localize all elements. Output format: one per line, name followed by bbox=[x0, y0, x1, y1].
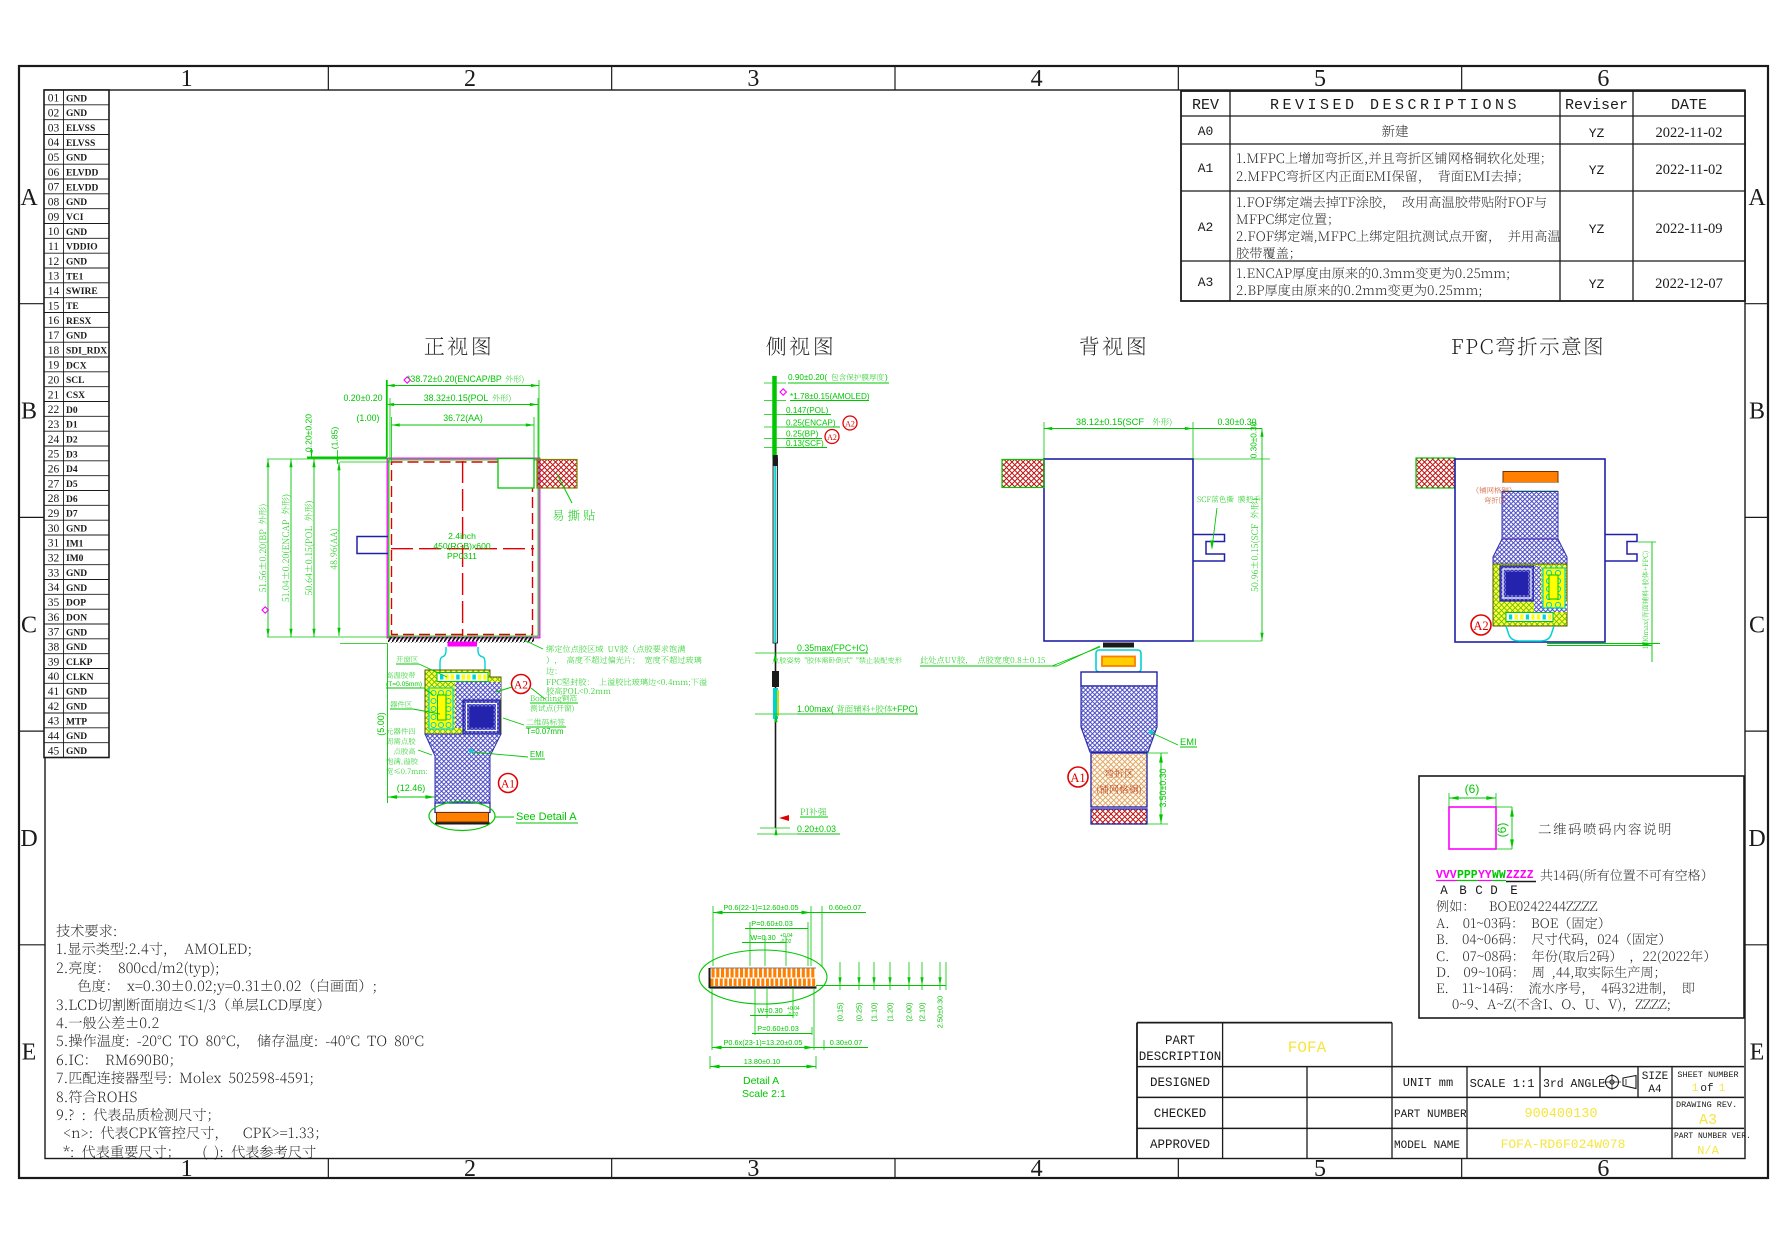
svg-text:SCALE 1:1: SCALE 1:1 bbox=[1470, 1077, 1535, 1091]
svg-text:GND: GND bbox=[66, 332, 87, 342]
svg-text:08: 08 bbox=[48, 196, 60, 208]
svg-text:34: 34 bbox=[48, 582, 60, 594]
svg-text:12: 12 bbox=[48, 256, 60, 268]
svg-text:GND: GND bbox=[66, 198, 87, 208]
svg-text:(2.00): (2.00) bbox=[905, 1002, 914, 1021]
svg-text:0.90±0.20(: 0.90±0.20( bbox=[788, 373, 827, 382]
svg-text:16: 16 bbox=[48, 315, 60, 327]
svg-text:APPROVED: APPROVED bbox=[1150, 1138, 1210, 1152]
svg-text:A2: A2 bbox=[1198, 220, 1214, 235]
svg-text:D: D bbox=[1490, 884, 1498, 898]
svg-text:CHECKED: CHECKED bbox=[1154, 1107, 1207, 1121]
svg-text:A1: A1 bbox=[1198, 161, 1214, 176]
svg-text:*1.78±0.15(AMOLED): *1.78±0.15(AMOLED) bbox=[790, 392, 870, 401]
svg-text:MODEL NAME: MODEL NAME bbox=[1394, 1140, 1460, 1152]
svg-text:B: B bbox=[1459, 884, 1467, 898]
svg-text:GND: GND bbox=[66, 643, 87, 653]
svg-text:0.35max(FPC+IC): 0.35max(FPC+IC) bbox=[797, 643, 868, 653]
svg-text:3.50±0.30: 3.50±0.30 bbox=[1158, 768, 1168, 807]
svg-text:0.20±0.20: 0.20±0.20 bbox=[343, 393, 382, 403]
svg-text:28: 28 bbox=[48, 493, 60, 505]
svg-text:D7: D7 bbox=[66, 510, 78, 520]
svg-text:1: 1 bbox=[1719, 1083, 1726, 1095]
svg-text:5: 5 bbox=[1314, 66, 1326, 92]
svg-text:5: 5 bbox=[1314, 1156, 1326, 1182]
svg-text:A3: A3 bbox=[1699, 1112, 1717, 1129]
svg-text:ELVSS: ELVSS bbox=[66, 139, 95, 149]
svg-text:PART NUMBER: PART NUMBER bbox=[1394, 1109, 1467, 1121]
svg-text:A2: A2 bbox=[845, 420, 855, 429]
svg-text:D6: D6 bbox=[66, 495, 78, 505]
svg-text:A1: A1 bbox=[501, 779, 515, 791]
svg-text:33: 33 bbox=[48, 567, 60, 579]
svg-text:0.13(SCF): 0.13(SCF) bbox=[786, 439, 824, 448]
svg-text:4: 4 bbox=[1031, 1156, 1043, 1182]
svg-text:GND: GND bbox=[66, 109, 87, 119]
svg-text:EMI: EMI bbox=[1180, 737, 1197, 747]
svg-text:GND: GND bbox=[66, 747, 87, 757]
svg-text:6: 6 bbox=[1597, 1156, 1609, 1182]
svg-text:GND: GND bbox=[66, 584, 87, 594]
svg-text:GND: GND bbox=[66, 258, 87, 268]
svg-text:E: E bbox=[1750, 1040, 1765, 1066]
svg-text:0.20±0.20: 0.20±0.20 bbox=[304, 414, 314, 452]
svg-text:DRAWING REV.: DRAWING REV. bbox=[1676, 1100, 1737, 1110]
svg-text:of: of bbox=[1700, 1083, 1713, 1095]
svg-text:GND: GND bbox=[66, 569, 87, 579]
svg-text:09: 09 bbox=[48, 211, 60, 223]
svg-text:A3: A3 bbox=[1198, 275, 1214, 290]
svg-text:3rd ANGLE: 3rd ANGLE bbox=[1543, 1078, 1605, 1091]
svg-text:44: 44 bbox=[48, 730, 60, 742]
svg-text:REV: REV bbox=[1192, 97, 1219, 114]
svg-text:A: A bbox=[1440, 884, 1448, 898]
svg-text:31: 31 bbox=[48, 538, 60, 550]
svg-text:SCL: SCL bbox=[66, 376, 84, 386]
svg-text:(6): (6) bbox=[1465, 782, 1480, 796]
svg-text:CSX: CSX bbox=[66, 391, 85, 401]
svg-text:C: C bbox=[1475, 884, 1483, 898]
svg-text:2022-11-02: 2022-11-02 bbox=[1655, 162, 1722, 178]
svg-text:DOP: DOP bbox=[66, 599, 86, 609]
svg-text:30: 30 bbox=[48, 523, 60, 535]
svg-text:RESX: RESX bbox=[66, 317, 91, 327]
svg-text:19: 19 bbox=[48, 360, 60, 372]
svg-text:2.4inch: 2.4inch bbox=[448, 531, 476, 541]
svg-text:35: 35 bbox=[48, 597, 60, 609]
svg-text:17: 17 bbox=[48, 330, 60, 342]
svg-text:2.50±0.30: 2.50±0.30 bbox=[936, 996, 945, 1028]
svg-text:EMI: EMI bbox=[530, 750, 544, 759]
svg-text:B: B bbox=[21, 399, 37, 425]
svg-text:21: 21 bbox=[48, 389, 60, 401]
svg-text:YZ: YZ bbox=[1589, 277, 1605, 292]
svg-text:Scale 2:1: Scale 2:1 bbox=[742, 1088, 786, 1100]
svg-text:YZ: YZ bbox=[1589, 126, 1605, 141]
svg-text:GND: GND bbox=[66, 94, 87, 104]
svg-text:D: D bbox=[1748, 826, 1765, 852]
svg-text:DATE: DATE bbox=[1671, 97, 1707, 114]
svg-text:W=0.30: W=0.30 bbox=[750, 933, 775, 942]
svg-text:0.25(BP): 0.25(BP) bbox=[786, 430, 819, 439]
svg-text:(0.15): (0.15) bbox=[836, 1002, 845, 1021]
svg-text:37: 37 bbox=[48, 627, 60, 639]
svg-text:Reviser: Reviser bbox=[1565, 97, 1628, 114]
svg-text:W=0.30: W=0.30 bbox=[757, 1006, 782, 1015]
svg-text:2022-11-02: 2022-11-02 bbox=[1655, 125, 1722, 141]
svg-text:(5.00): (5.00) bbox=[376, 712, 386, 736]
svg-text:CLKP: CLKP bbox=[66, 658, 93, 668]
svg-text:CLKN: CLKN bbox=[66, 673, 94, 683]
svg-text:FOFA-RD6F024W078: FOFA-RD6F024W078 bbox=[1501, 1137, 1626, 1152]
svg-text:P0.6x(23-1)=13.20±0.05: P0.6x(23-1)=13.20±0.05 bbox=[724, 1038, 803, 1047]
svg-text:D1: D1 bbox=[66, 421, 78, 431]
svg-text:2: 2 bbox=[464, 66, 476, 92]
svg-text:D3: D3 bbox=[66, 450, 78, 460]
svg-text:SIZE: SIZE bbox=[1642, 1071, 1669, 1083]
svg-text:D2: D2 bbox=[66, 436, 78, 446]
svg-text:2: 2 bbox=[464, 1156, 476, 1182]
svg-text:6: 6 bbox=[1597, 66, 1609, 92]
svg-text:A: A bbox=[1748, 185, 1766, 211]
svg-text:13: 13 bbox=[48, 271, 60, 283]
svg-text:0.147(POL): 0.147(POL) bbox=[786, 406, 829, 415]
svg-text:(1.85): (1.85) bbox=[330, 427, 340, 450]
svg-text:P=0.60±0.03: P=0.60±0.03 bbox=[751, 919, 793, 928]
svg-text:C: C bbox=[1749, 612, 1765, 638]
svg-text:38: 38 bbox=[48, 641, 60, 653]
svg-text:P0.6(22-1)=12.60±0.05: P0.6(22-1)=12.60±0.05 bbox=[723, 903, 798, 912]
svg-text:ZZZZ: ZZZZ bbox=[1506, 869, 1534, 882]
svg-text:GND: GND bbox=[66, 732, 87, 742]
svg-text:29: 29 bbox=[48, 508, 60, 520]
svg-text:A4: A4 bbox=[1648, 1084, 1662, 1096]
svg-text:SWIRE: SWIRE bbox=[66, 287, 98, 297]
svg-text:14: 14 bbox=[48, 285, 60, 297]
svg-text:TE1: TE1 bbox=[66, 272, 84, 282]
svg-text:IM1: IM1 bbox=[66, 539, 84, 549]
svg-text:36.72(AA): 36.72(AA) bbox=[443, 413, 483, 423]
svg-text:PP0311: PP0311 bbox=[447, 551, 477, 561]
svg-text:P=0.60±0.03: P=0.60±0.03 bbox=[757, 1024, 799, 1033]
svg-text:01: 01 bbox=[48, 93, 60, 105]
svg-text:39: 39 bbox=[48, 656, 60, 668]
svg-text:1: 1 bbox=[181, 1156, 193, 1182]
svg-text:(2.10): (2.10) bbox=[918, 1002, 927, 1021]
svg-text:GND: GND bbox=[66, 154, 87, 164]
svg-text:45: 45 bbox=[48, 745, 60, 757]
svg-text:DESIGNED: DESIGNED bbox=[1150, 1076, 1210, 1090]
svg-text:11: 11 bbox=[48, 241, 59, 253]
svg-text:(1.00): (1.00) bbox=[357, 413, 380, 423]
svg-text:A0: A0 bbox=[1198, 124, 1214, 139]
svg-text:E: E bbox=[1510, 884, 1518, 898]
svg-text:SHEET NUMBER: SHEET NUMBER bbox=[1677, 1070, 1738, 1080]
svg-text:20: 20 bbox=[48, 374, 60, 386]
svg-text:GND: GND bbox=[66, 628, 87, 638]
svg-text:REVISED DESCRIPTIONS: REVISED DESCRIPTIONS bbox=[1270, 97, 1520, 114]
svg-text:A2: A2 bbox=[1473, 619, 1488, 633]
svg-text:(6): (6) bbox=[1495, 823, 1509, 838]
svg-text:DON: DON bbox=[66, 614, 87, 624]
svg-text:(T=0.05mm): (T=0.05mm) bbox=[386, 681, 422, 688]
svg-text:GND: GND bbox=[66, 703, 87, 713]
svg-text:10: 10 bbox=[48, 226, 60, 238]
svg-text:18: 18 bbox=[48, 345, 60, 357]
svg-text:D4: D4 bbox=[66, 465, 78, 475]
svg-text:0.25(ENCAP): 0.25(ENCAP) bbox=[786, 419, 836, 428]
svg-text:GND: GND bbox=[66, 228, 87, 238]
svg-text:A1: A1 bbox=[1070, 771, 1085, 785]
svg-text:3: 3 bbox=[747, 1156, 759, 1182]
svg-text:SDI_RDX: SDI_RDX bbox=[66, 347, 107, 357]
svg-text:0.20±0.03: 0.20±0.03 bbox=[797, 824, 836, 834]
svg-text:26: 26 bbox=[48, 463, 60, 475]
svg-text:DCX: DCX bbox=[66, 361, 87, 371]
svg-text:VCI: VCI bbox=[66, 213, 84, 223]
svg-text:YZ: YZ bbox=[1589, 163, 1605, 178]
svg-text:(1.20): (1.20) bbox=[886, 1002, 895, 1021]
svg-text:*38.72±0.20(ENCAP/BP: *38.72±0.20(ENCAP/BP bbox=[407, 374, 502, 384]
svg-text:B: B bbox=[1749, 399, 1765, 425]
svg-text:0.30±0.07: 0.30±0.07 bbox=[830, 1038, 862, 1047]
svg-text:0.60±0.07: 0.60±0.07 bbox=[829, 903, 861, 912]
svg-text:GND: GND bbox=[66, 525, 87, 535]
svg-text:3: 3 bbox=[747, 66, 759, 92]
svg-text:MTP: MTP bbox=[66, 717, 87, 727]
svg-text:TE: TE bbox=[66, 302, 79, 312]
svg-text:+FPC): +FPC) bbox=[892, 704, 918, 714]
svg-text:PART NUMBER VER.: PART NUMBER VER. bbox=[1674, 1132, 1751, 1141]
svg-text:05: 05 bbox=[48, 152, 60, 164]
svg-text:FOFA: FOFA bbox=[1288, 1039, 1327, 1057]
svg-text:T=0.07mm: T=0.07mm bbox=[526, 727, 563, 736]
svg-text:E: E bbox=[22, 1040, 37, 1066]
svg-text:2022-11-09: 2022-11-09 bbox=[1655, 221, 1722, 237]
svg-text:): ) bbox=[885, 373, 888, 382]
svg-text:02: 02 bbox=[48, 107, 60, 119]
svg-text:38.32±0.15(POL: 38.32±0.15(POL bbox=[424, 393, 489, 403]
svg-text:PART: PART bbox=[1165, 1034, 1196, 1048]
svg-text:1: 1 bbox=[1692, 1083, 1699, 1095]
svg-text:ELVDD: ELVDD bbox=[66, 169, 99, 179]
svg-text:Detail A: Detail A bbox=[743, 1075, 779, 1087]
svg-text:D5: D5 bbox=[66, 480, 78, 490]
svg-text:D: D bbox=[20, 826, 37, 852]
svg-text:D0: D0 bbox=[66, 406, 78, 416]
svg-text:A: A bbox=[20, 185, 38, 211]
svg-text:25: 25 bbox=[48, 449, 60, 461]
svg-text:0.30±0.30: 0.30±0.30 bbox=[1250, 421, 1259, 458]
svg-text:07: 07 bbox=[48, 182, 60, 194]
svg-text:UNIT mm: UNIT mm bbox=[1403, 1076, 1453, 1090]
svg-text:ELVDD: ELVDD bbox=[66, 183, 99, 193]
svg-text:4: 4 bbox=[1031, 66, 1043, 92]
svg-text:32: 32 bbox=[48, 552, 60, 564]
svg-text:See Detail A: See Detail A bbox=[516, 811, 577, 823]
svg-text:03: 03 bbox=[48, 122, 60, 134]
svg-text:DESCRIPTION: DESCRIPTION bbox=[1139, 1050, 1222, 1064]
svg-text:41: 41 bbox=[48, 686, 60, 698]
svg-text:24: 24 bbox=[48, 434, 60, 446]
svg-text:(12.46): (12.46) bbox=[397, 783, 426, 793]
svg-text:43: 43 bbox=[48, 716, 60, 728]
svg-text:A2: A2 bbox=[514, 680, 528, 692]
svg-text:04: 04 bbox=[48, 137, 60, 149]
svg-text:C: C bbox=[21, 612, 37, 638]
svg-text:YZ: YZ bbox=[1589, 222, 1605, 237]
svg-text:1.00max(: 1.00max( bbox=[797, 704, 834, 714]
svg-text:A2: A2 bbox=[827, 433, 837, 442]
svg-text:13.80±0.10: 13.80±0.10 bbox=[744, 1057, 780, 1066]
svg-text:06: 06 bbox=[48, 167, 60, 179]
svg-text:(1.10): (1.10) bbox=[870, 1002, 879, 1021]
svg-text:VDDIO: VDDIO bbox=[66, 243, 98, 253]
svg-text:ELVSS: ELVSS bbox=[66, 124, 95, 134]
svg-text:(0.25): (0.25) bbox=[855, 1002, 864, 1021]
svg-text:15: 15 bbox=[48, 300, 60, 312]
svg-text:38.12±0.15(SCF: 38.12±0.15(SCF bbox=[1076, 417, 1144, 427]
svg-text:40: 40 bbox=[48, 671, 60, 683]
svg-text:1: 1 bbox=[181, 66, 193, 92]
svg-text:GND: GND bbox=[66, 688, 87, 698]
svg-text:900400130: 900400130 bbox=[1525, 1107, 1598, 1122]
svg-text:36: 36 bbox=[48, 612, 60, 624]
svg-text:23: 23 bbox=[48, 419, 60, 431]
svg-text:2022-12-07: 2022-12-07 bbox=[1655, 276, 1723, 292]
svg-text:IM0: IM0 bbox=[66, 554, 84, 564]
svg-text:22: 22 bbox=[48, 404, 60, 416]
svg-text:450(RGB)x600: 450(RGB)x600 bbox=[433, 541, 491, 551]
svg-text:42: 42 bbox=[48, 701, 60, 713]
svg-text:27: 27 bbox=[48, 478, 60, 490]
svg-text:N/A: N/A bbox=[1697, 1144, 1719, 1158]
